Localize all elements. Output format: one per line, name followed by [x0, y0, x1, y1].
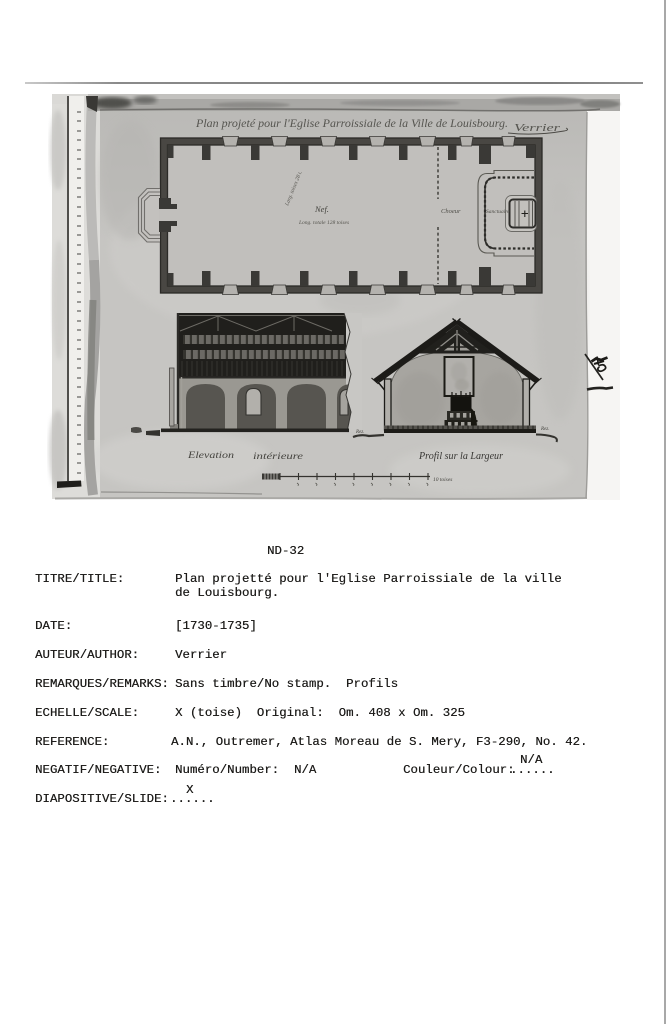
svg-text:Choeur: Choeur: [441, 208, 461, 215]
svg-text:Long. totale 128 toises: Long. totale 128 toises: [298, 220, 349, 226]
svg-text:intérieure: intérieure: [253, 452, 303, 462]
svg-text:Elevation: Elevation: [187, 451, 235, 461]
svg-text:Nef.: Nef.: [314, 204, 329, 214]
svg-text:Sanctuaire: Sanctuaire: [486, 209, 510, 215]
svg-text:Plan projeté pour l'Eglise Par: Plan projeté pour l'Eglise Parroissiale …: [195, 118, 508, 130]
svg-text:10 toises: 10 toises: [433, 477, 452, 483]
svg-text:Rez.: Rez.: [355, 430, 364, 435]
svg-text:Profil sur la Largeur: Profil sur la Largeur: [418, 451, 504, 462]
svg-text:Rez.: Rez.: [540, 427, 549, 432]
